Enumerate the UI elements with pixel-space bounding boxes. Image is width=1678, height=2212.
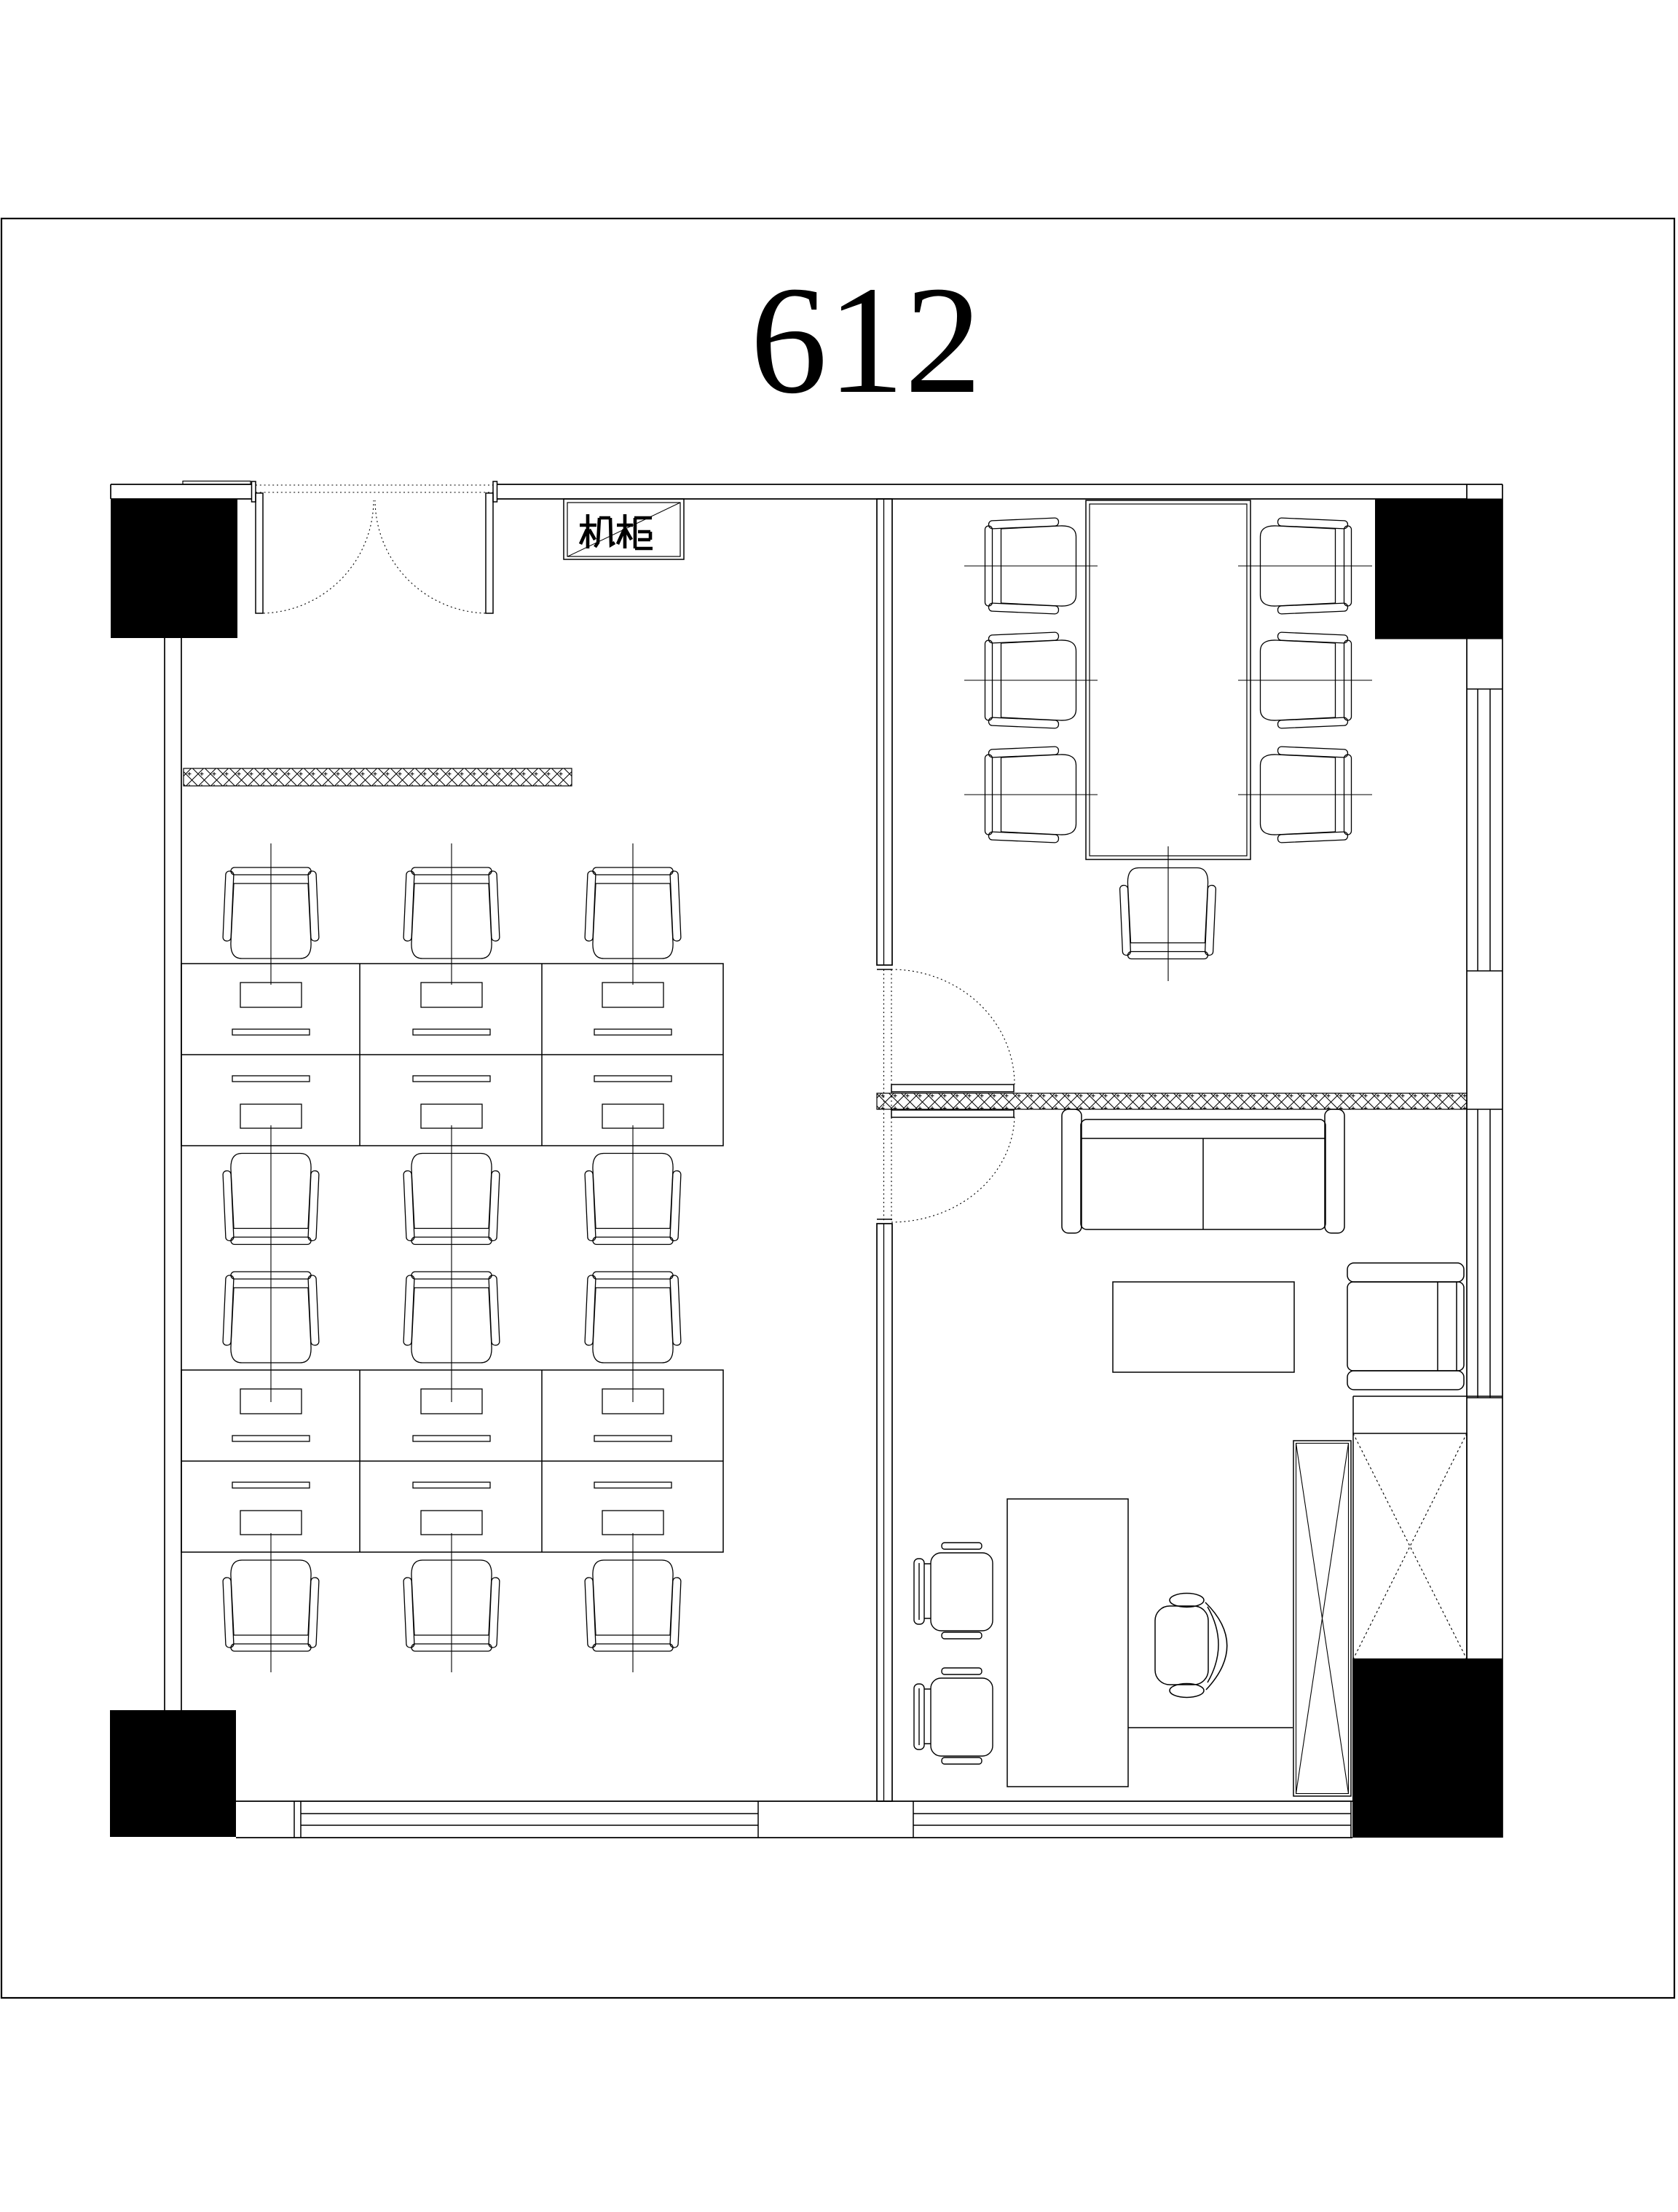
svg-text:612: 612 xyxy=(750,254,982,425)
